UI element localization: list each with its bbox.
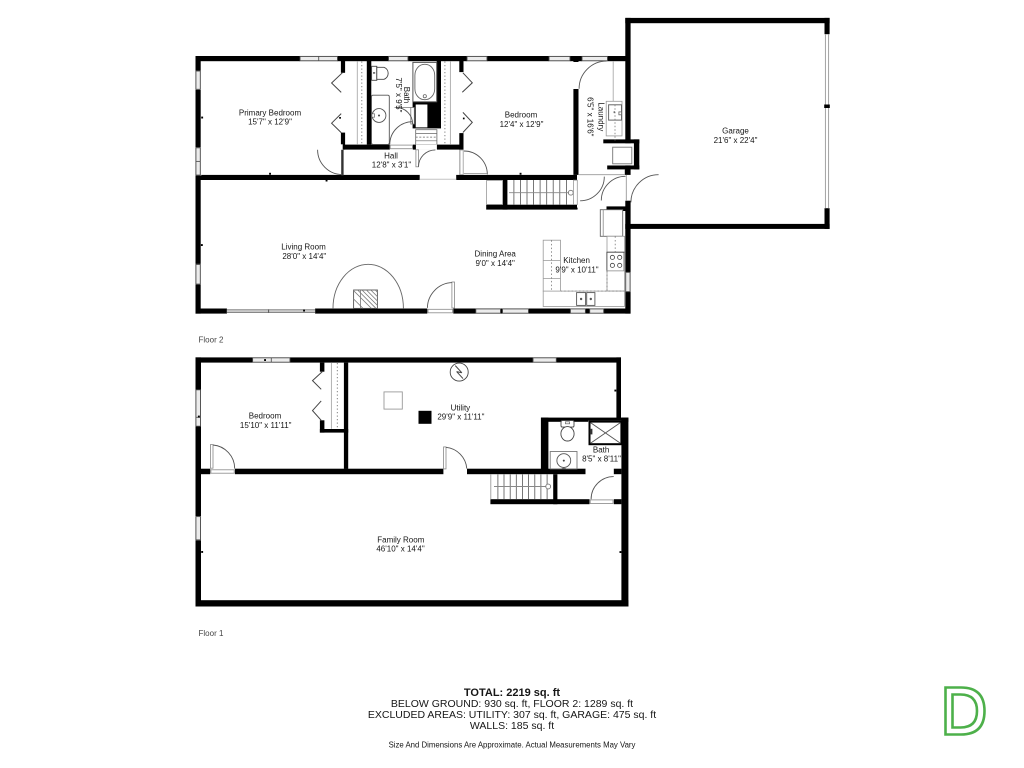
- svg-text:Family Room: Family Room: [377, 535, 424, 544]
- svg-text:15'10" x 11'11": 15'10" x 11'11": [240, 421, 292, 430]
- svg-text:Bedroom: Bedroom: [249, 412, 282, 421]
- svg-text:12'4" x 12'9": 12'4" x 12'9": [500, 120, 544, 129]
- svg-text:12'8" x 3'1": 12'8" x 3'1": [372, 161, 412, 170]
- svg-text:Utility: Utility: [451, 403, 471, 412]
- svg-text:6'5" x 16'6": 6'5" x 16'6": [586, 97, 595, 137]
- svg-text:46'10" x 14'4": 46'10" x 14'4": [376, 544, 424, 553]
- svg-text:WALLS: 185 sq. ft: WALLS: 185 sq. ft: [470, 720, 554, 732]
- svg-text:Bedroom: Bedroom: [505, 110, 538, 119]
- svg-text:Floor 2: Floor 2: [199, 336, 224, 345]
- svg-text:Bath: Bath: [593, 446, 609, 455]
- svg-text:Floor 1: Floor 1: [199, 629, 224, 638]
- svg-text:Living Room: Living Room: [281, 242, 326, 251]
- svg-text:9'9" x 10'11": 9'9" x 10'11": [555, 265, 598, 274]
- svg-text:Garage: Garage: [722, 127, 749, 136]
- svg-text:Primary Bedroom: Primary Bedroom: [239, 108, 302, 117]
- svg-text:Size And Dimensions Are Approx: Size And Dimensions Are Approximate. Act…: [389, 741, 636, 750]
- svg-text:8'5" x 8'11": 8'5" x 8'11": [582, 455, 621, 464]
- svg-text:28'0" x 14'4": 28'0" x 14'4": [282, 252, 326, 261]
- svg-text:15'7" x 12'9": 15'7" x 12'9": [248, 118, 292, 127]
- svg-text:21'6" x 22'4": 21'6" x 22'4": [714, 136, 758, 145]
- svg-text:29'9" x 11'11": 29'9" x 11'11": [437, 412, 484, 421]
- svg-text:Kitchen: Kitchen: [563, 256, 590, 265]
- svg-text:Laundry: Laundry: [596, 102, 605, 131]
- svg-text:Dining Area: Dining Area: [475, 249, 517, 258]
- svg-text:9'0" x 14'4": 9'0" x 14'4": [475, 259, 515, 268]
- svg-text:7'5" x 9'5": 7'5" x 9'5": [394, 78, 403, 113]
- svg-text:Hall: Hall: [384, 152, 398, 161]
